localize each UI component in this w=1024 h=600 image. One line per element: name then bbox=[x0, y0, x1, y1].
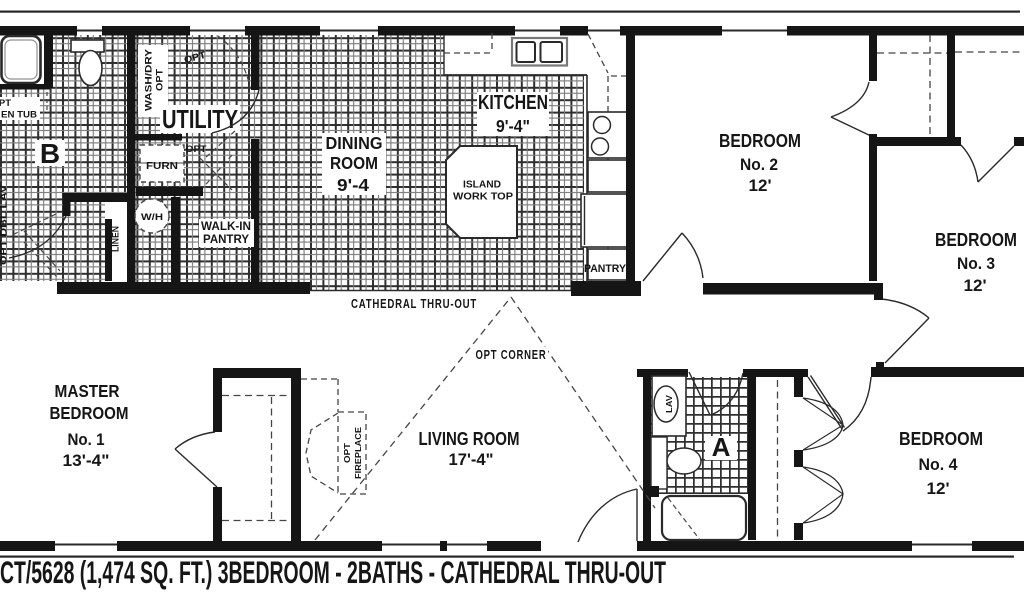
svg-text:OPT DBL LAV: OPT DBL LAV bbox=[0, 184, 10, 265]
svg-text:BEDROOM: BEDROOM bbox=[899, 428, 983, 449]
svg-text:12': 12' bbox=[749, 176, 772, 195]
svg-text:OPT: OPT bbox=[155, 69, 166, 91]
svg-text:LAV: LAV bbox=[664, 395, 674, 413]
svg-text:No. 3: No. 3 bbox=[957, 254, 995, 273]
svg-text:PANTRY: PANTRY bbox=[203, 234, 249, 246]
svg-text:EN TUB: EN TUB bbox=[1, 110, 37, 121]
svg-text:DINING: DINING bbox=[326, 133, 383, 153]
svg-text:WASH/DRY: WASH/DRY bbox=[144, 48, 155, 111]
svg-text:BEDROOM: BEDROOM bbox=[719, 130, 801, 151]
svg-text:No. 1: No. 1 bbox=[68, 431, 105, 449]
svg-text:PT: PT bbox=[0, 98, 11, 109]
svg-text:B: B bbox=[40, 138, 60, 169]
svg-text:OPT CORNER: OPT CORNER bbox=[476, 348, 547, 362]
svg-text:OPT: OPT bbox=[186, 144, 207, 155]
svg-text:17'-4": 17'-4" bbox=[449, 450, 494, 469]
svg-text:LINEN: LINEN bbox=[111, 226, 121, 252]
svg-text:12': 12' bbox=[927, 479, 950, 498]
svg-text:No. 4: No. 4 bbox=[919, 455, 959, 474]
svg-text:13'-4": 13'-4" bbox=[63, 452, 110, 470]
svg-text:WORK TOP: WORK TOP bbox=[453, 191, 513, 203]
svg-text:KITCHEN: KITCHEN bbox=[478, 92, 548, 114]
svg-text:12': 12' bbox=[964, 276, 987, 295]
svg-text:9'-4: 9'-4 bbox=[337, 175, 369, 195]
svg-text:ROOM: ROOM bbox=[330, 153, 378, 173]
svg-text:CT/5628 (1,474 SQ. FT.) 3BEDRO: CT/5628 (1,474 SQ. FT.) 3BEDROOM - 2BATH… bbox=[0, 554, 666, 590]
svg-text:PANTRY: PANTRY bbox=[584, 263, 627, 275]
svg-text:BEDROOM: BEDROOM bbox=[50, 403, 129, 423]
svg-text:WALK-IN: WALK-IN bbox=[201, 221, 251, 233]
svg-text:9'-4": 9'-4" bbox=[496, 116, 530, 136]
svg-text:ISLAND: ISLAND bbox=[463, 179, 501, 191]
svg-text:BEDROOM: BEDROOM bbox=[935, 229, 1017, 250]
svg-text:FURN: FURN bbox=[146, 161, 178, 172]
svg-text:LIVING ROOM: LIVING ROOM bbox=[419, 428, 520, 449]
svg-text:CATHEDRAL THRU-OUT: CATHEDRAL THRU-OUT bbox=[351, 297, 477, 311]
svg-text:No. 2: No. 2 bbox=[740, 155, 778, 174]
svg-text:W/H: W/H bbox=[141, 212, 163, 223]
svg-text:FIREPLACE: FIREPLACE bbox=[353, 427, 363, 479]
svg-text:MASTER: MASTER bbox=[55, 381, 120, 401]
svg-text:UTILITY: UTILITY bbox=[162, 104, 238, 134]
svg-text:OPT: OPT bbox=[342, 442, 352, 463]
svg-text:A: A bbox=[712, 432, 731, 462]
